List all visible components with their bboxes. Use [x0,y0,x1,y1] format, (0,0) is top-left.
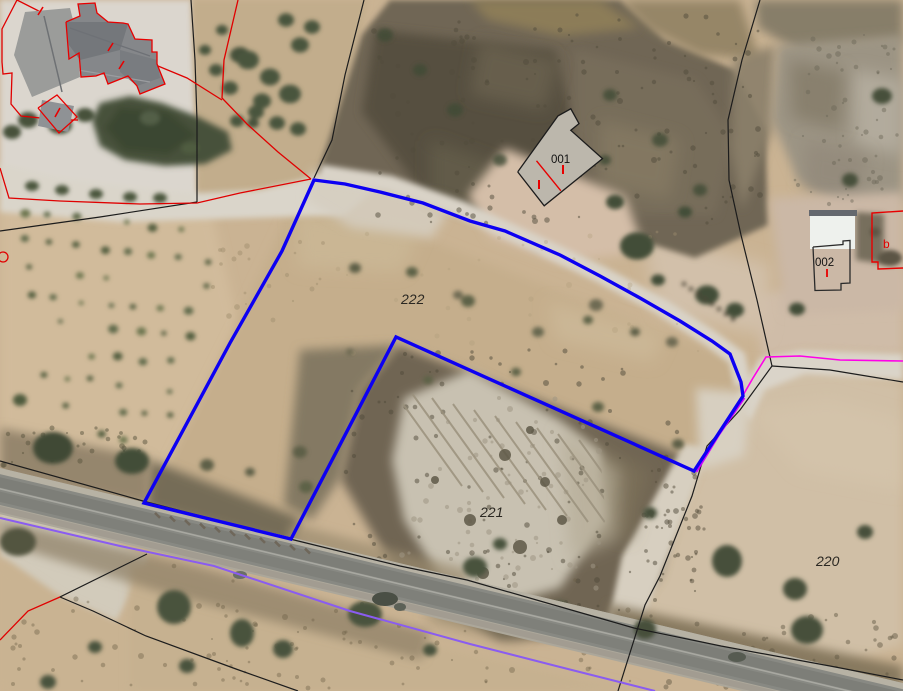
svg-text:222: 222 [400,291,425,307]
svg-text:b: b [883,237,890,251]
svg-text:221: 221 [479,504,503,520]
svg-text:002: 002 [815,257,834,269]
svg-text:220: 220 [815,553,840,569]
svg-text:001: 001 [551,154,570,166]
